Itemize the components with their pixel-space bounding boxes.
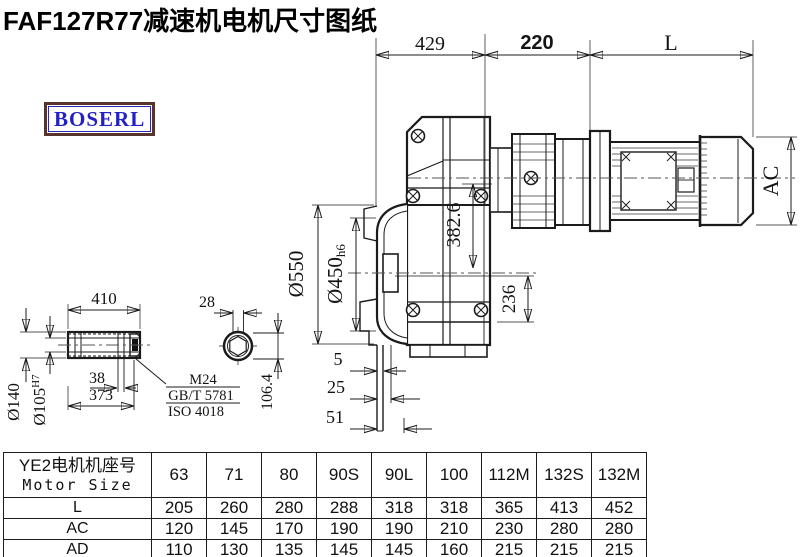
dim-220: 220: [520, 32, 553, 54]
cell: 452: [592, 498, 647, 519]
dim-236: 236: [499, 285, 520, 314]
thread-callout-m24: M24: [189, 372, 217, 388]
cell: 170: [262, 519, 317, 540]
cell: 160: [427, 540, 482, 557]
drawing-sheet: FAF127R77减速机电机尺寸图纸 BOSERL: [0, 0, 800, 557]
col-header: 100: [427, 453, 482, 498]
cell: 215: [537, 540, 592, 557]
second-stage-view: [490, 134, 590, 228]
cell: 215: [482, 540, 537, 557]
cell: 288: [317, 498, 372, 519]
dim-dia105: Ø105H7: [30, 374, 49, 426]
cell: 413: [537, 498, 592, 519]
col-header: 63: [152, 453, 207, 498]
col-header: 132M: [592, 453, 647, 498]
shaft-detail-view: [68, 332, 140, 358]
bolt-icon: [407, 190, 420, 203]
col-header: 132S: [537, 453, 592, 498]
motor-side-view: [590, 131, 753, 231]
bolt-icon: [475, 304, 488, 317]
cell: 210: [427, 519, 482, 540]
table-row-AD: AD 110 130 135 145 145 160 215 215 215: [4, 540, 647, 557]
cell: 230: [482, 519, 537, 540]
bolt-icon: [412, 130, 425, 143]
dim-106: 106.4: [259, 374, 276, 410]
cell: 365: [482, 498, 537, 519]
cell: 280: [537, 519, 592, 540]
shaft-end-view: [219, 327, 257, 365]
dim-dia550: Ø550: [284, 251, 308, 298]
technical-drawing: 429 220 L AC Ø550 Ø450h6 382.6: [0, 0, 800, 455]
bolt-icon: [407, 304, 420, 317]
thread-callout-gbt: GB/T 5781: [168, 388, 233, 404]
table-row-AC: AC 120 145 170 190 190 210 230 280 280: [4, 519, 647, 540]
col-header: 71: [207, 453, 262, 498]
dim-dia450: Ø450h6: [323, 244, 348, 304]
cell: 145: [207, 519, 262, 540]
cell: 318: [372, 498, 427, 519]
motor-size-header: YE2电机机座号 Motor Size: [4, 453, 152, 498]
col-header: 90L: [372, 453, 427, 498]
cell: 135: [262, 540, 317, 557]
bolt-icon: [475, 190, 488, 203]
row-label: L: [4, 498, 152, 519]
dim-5: 5: [334, 349, 343, 369]
cell: 120: [152, 519, 207, 540]
dim-410: 410: [91, 289, 117, 308]
cell: 145: [372, 540, 427, 557]
cell: 190: [317, 519, 372, 540]
dim-382: 382.6: [443, 203, 465, 248]
table-row-L: L 205 260 280 288 318 318 365 413 452: [4, 498, 647, 519]
dim-L: L: [664, 30, 677, 55]
cell: 280: [262, 498, 317, 519]
dim-38: 38: [89, 370, 105, 387]
cell: 205: [152, 498, 207, 519]
cell: 280: [592, 519, 647, 540]
row-label: AC: [4, 519, 152, 540]
dim-dia140: Ø140: [4, 383, 23, 421]
cell: 145: [317, 540, 372, 557]
col-header: 80: [262, 453, 317, 498]
dim-429: 429: [415, 33, 445, 55]
row-label: AD: [4, 540, 152, 557]
thread-callout-iso: ISO 4018: [168, 404, 224, 420]
cell: 190: [372, 519, 427, 540]
col-header: 90S: [317, 453, 372, 498]
cell: 215: [592, 540, 647, 557]
dim-AC: AC: [758, 166, 783, 197]
dim-28: 28: [199, 294, 215, 311]
cell: 110: [152, 540, 207, 557]
col-header: 112M: [482, 453, 537, 498]
cell: 318: [427, 498, 482, 519]
gearbox-side-view: [360, 117, 490, 433]
dim-51: 51: [326, 407, 344, 427]
dim-25: 25: [327, 377, 345, 397]
cell: 260: [207, 498, 262, 519]
dim-373: 373: [89, 387, 113, 404]
spec-table: YE2电机机座号 Motor Size 63 71 80 90S 90L 100…: [3, 452, 647, 557]
cell: 130: [207, 540, 262, 557]
table-header-row: YE2电机机座号 Motor Size 63 71 80 90S 90L 100…: [4, 453, 647, 498]
